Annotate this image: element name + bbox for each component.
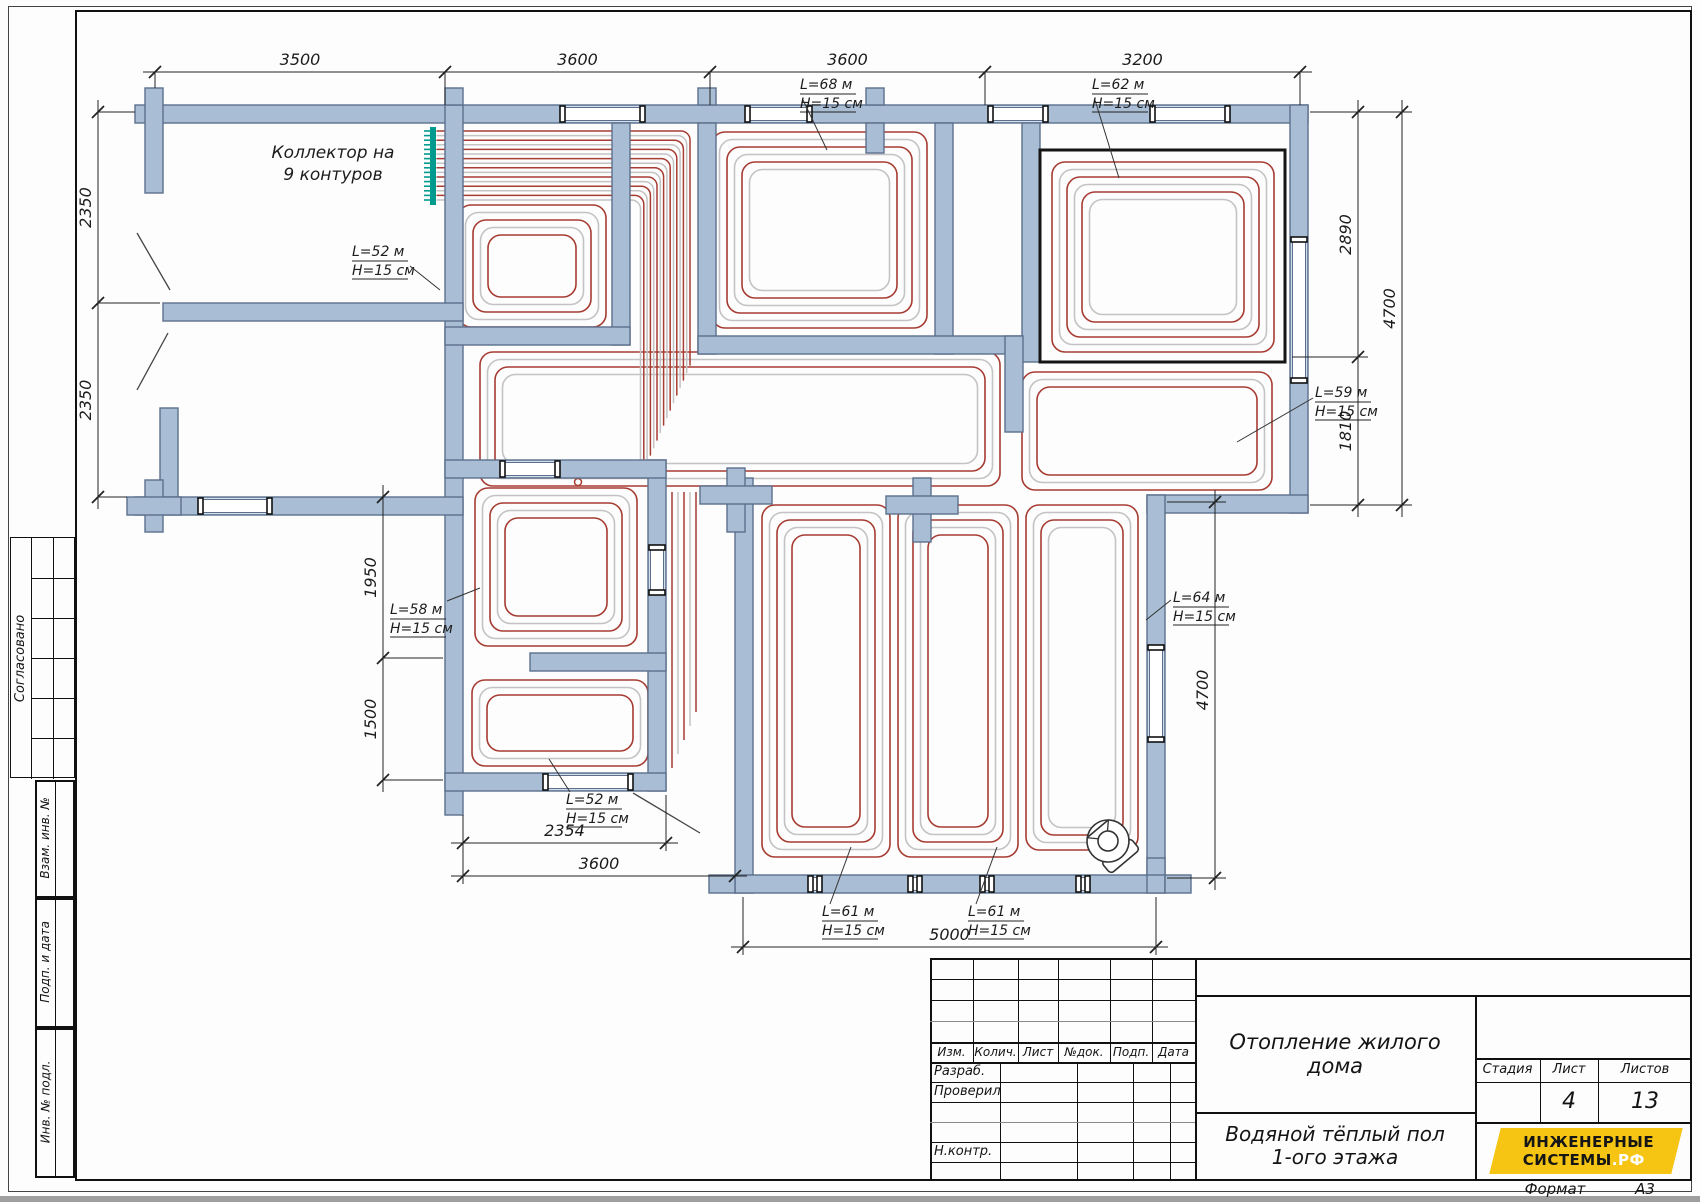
rev-header: Дата: [1152, 1043, 1195, 1062]
stamp-label: Взам. инв. №: [39, 797, 53, 878]
approved-label: Согласовано: [15, 614, 30, 701]
format-value: А3: [1615, 1182, 1675, 1198]
format-label: Формат: [1495, 1182, 1615, 1198]
stamp-box: Инв. № подл.: [35, 1028, 75, 1178]
role-label: Проверил: [934, 1082, 1000, 1102]
sheet-number: 4: [1540, 1082, 1598, 1122]
title-block: Изм. Колич. Лист №док. Подп. Дата Разраб…: [930, 958, 1692, 1181]
role-label: Н.контр.: [934, 1142, 1000, 1162]
rev-header: Изм.: [930, 1043, 973, 1062]
company-logo: ИНЖЕНЕРНЫЕ СИСТЕМЫ.РФ: [1489, 1128, 1682, 1174]
stamp-label: Подп. и дата: [39, 921, 53, 1003]
rev-header: Колич.: [973, 1043, 1018, 1062]
stamp-box: Подп. и дата: [35, 898, 75, 1028]
blueprint-page: 3500360036003200235436005000235023501950…: [0, 0, 1700, 1202]
sheets-total: 13: [1598, 1082, 1692, 1122]
rev-header: Лист: [1018, 1043, 1058, 1062]
sheets-label: Листов: [1598, 1059, 1692, 1081]
stamp-box: Взам. инв. №: [35, 780, 75, 898]
drawing-sheet: 3500360036003200235436005000235023501950…: [0, 0, 1700, 1196]
role-label: Разраб.: [934, 1062, 1000, 1082]
rev-header: Подп.: [1110, 1043, 1152, 1062]
project-title: Отопление жилого дома: [1197, 998, 1473, 1110]
rev-header: №док.: [1058, 1043, 1110, 1062]
sheet-title: Водяной тёплый пол 1-ого этажа: [1197, 1114, 1473, 1178]
stamp-label: Инв. № подл.: [39, 1061, 53, 1144]
approval-grid: Согласовано: [10, 537, 75, 778]
sheet-label: Лист: [1540, 1059, 1598, 1081]
stage-label: Стадия: [1475, 1059, 1540, 1081]
